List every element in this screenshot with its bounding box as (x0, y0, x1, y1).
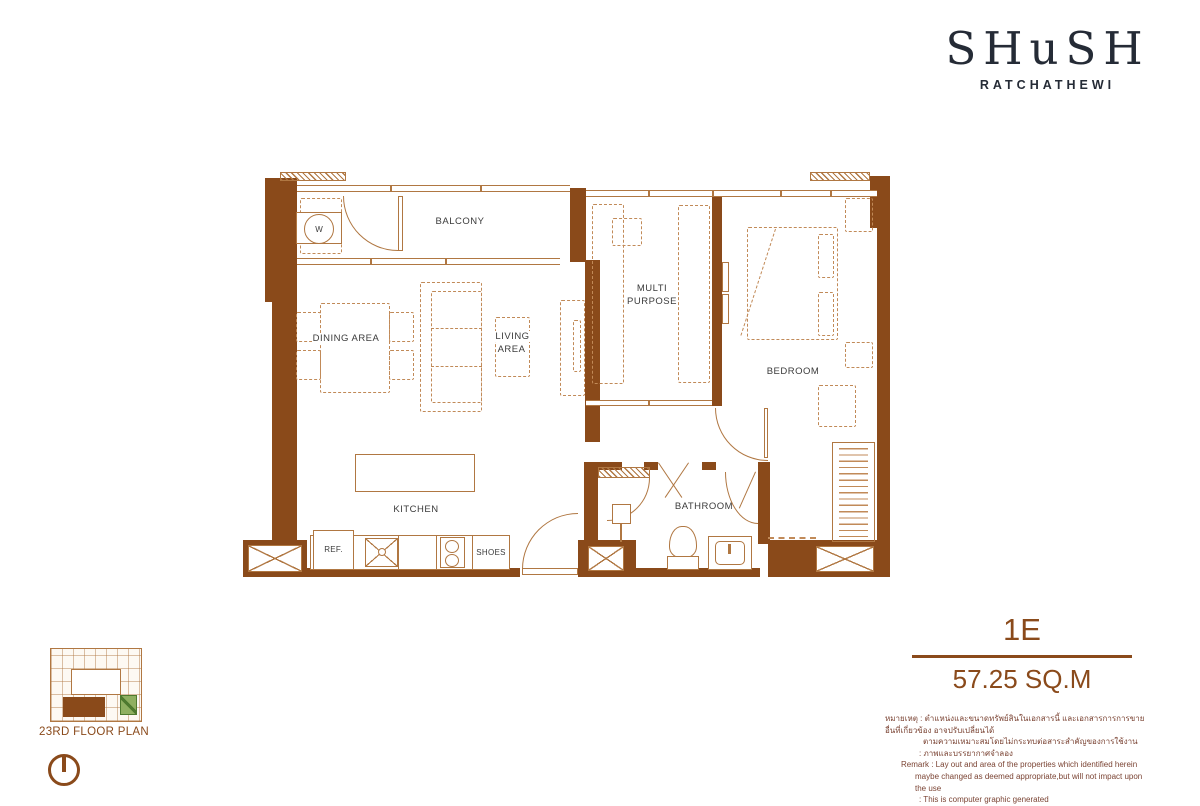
washer-icon: W (304, 214, 334, 244)
pillow (818, 234, 834, 278)
entrance-door-arc (522, 513, 578, 569)
toilet-tank (667, 556, 699, 570)
window-mullion (445, 258, 447, 265)
wardrobe (832, 442, 875, 542)
balcony-door-leaf (398, 196, 403, 251)
stove-burner (445, 554, 459, 567)
entrance-door-leaf (522, 568, 578, 575)
window-mullion (390, 185, 392, 192)
window-mullion (830, 190, 832, 197)
window-mullion (712, 190, 714, 197)
desk-chair (818, 385, 856, 427)
pillow (818, 292, 834, 336)
top-window (586, 190, 877, 197)
balcony-top-window (297, 185, 570, 192)
nightstand (845, 198, 873, 232)
tv-icon (573, 320, 581, 372)
unit-area: 57.25 SQ.M (912, 664, 1132, 695)
shower-head (598, 467, 650, 478)
remark-line: ตามความเหมาะสมโดยไม่กระทบต่อสาระสำคัญของ… (885, 736, 1147, 748)
wall-corner-top-right (870, 176, 890, 228)
dining-table (320, 303, 390, 393)
kitchen-island (355, 454, 475, 492)
nightstand (845, 342, 873, 368)
bifold-door-leaf (658, 462, 682, 497)
bedroom-label: BEDROOM (759, 366, 827, 379)
stove-burner (445, 540, 459, 553)
shaft-xbox-left (248, 545, 302, 572)
compass-needle (62, 756, 66, 772)
balcony-sliding-door (297, 258, 560, 265)
key-plan-stairs-green (120, 695, 137, 715)
wall-left-upper (265, 178, 297, 302)
balcony-door-arc (343, 196, 398, 251)
remark-line: : ภาพและบรรยากาศจำลอง (885, 748, 1147, 760)
shoes-cabinet-label: SHOES (473, 548, 509, 559)
wall-right (877, 186, 890, 542)
dining-chair (296, 350, 321, 380)
balcony-label: BALCONY (425, 216, 495, 229)
key-plan-unit-highlight (63, 697, 105, 717)
sliding-panel (722, 262, 729, 292)
shower-column (612, 504, 631, 524)
key-plan (50, 648, 142, 722)
living-label: LIVING AREA (490, 331, 534, 357)
dining-chair (389, 350, 414, 380)
sofa-cushion-line (431, 366, 482, 367)
remark-line: หมายเหตุ : ตำแหน่งและขนาดทรัพย์สินในเอกส… (885, 713, 1147, 736)
remark-line: Remark : Lay out and area of the propert… (885, 759, 1147, 771)
brand-logo: SHuSH (930, 22, 1165, 75)
wall-multi-bedroom (712, 196, 722, 406)
dining-label: DINING AREA (311, 333, 381, 346)
bifold-door-leaf (665, 462, 689, 497)
sofa-seat (431, 291, 482, 403)
dining-chair (389, 312, 414, 342)
brand-location: RATCHATHEWI (930, 78, 1165, 92)
window-mullion (648, 190, 650, 197)
remark-line: maybe changed as deemed appropriate,but … (885, 771, 1147, 794)
remark-block: หมายเหตุ : ตำแหน่งและขนาดทรัพย์สินในเอกส… (885, 713, 1147, 806)
multi-purpose-label: MULTI PURPOSE (620, 283, 684, 309)
shower-column-stem (620, 524, 622, 542)
key-plan-caption: 23RD FLOOR PLAN (23, 726, 165, 738)
key-plan-core (71, 669, 121, 695)
counter-divider (398, 535, 399, 570)
counter-divider (436, 535, 437, 570)
kitchen-label: KITCHEN (380, 504, 452, 517)
window-mullion (780, 190, 782, 197)
vanity-faucet (728, 544, 731, 554)
refrigerator: REF. (313, 530, 354, 570)
bathroom-door-arc (725, 472, 758, 524)
wall-left-lower (272, 300, 297, 545)
multi-purpose-table (612, 218, 642, 246)
shaft-xbox-right (816, 546, 874, 572)
window-mullion (480, 185, 482, 192)
brand-header: SHuSH RATCHATHEWI (930, 22, 1165, 92)
unit-code: 1E (912, 612, 1132, 648)
balcony-railing-hatch (280, 172, 346, 181)
floor-plan: W BALCONY DINING AREA LIVING AREA KITCHE… (240, 170, 900, 590)
bathroom-label: BATHROOM (670, 501, 738, 514)
window-mullion (648, 400, 650, 406)
toilet-bowl (669, 526, 697, 558)
wall-bath-right (758, 462, 770, 544)
unit-divider (912, 655, 1132, 658)
wall-bath-top-2 (702, 462, 716, 470)
window-mullion (370, 258, 372, 265)
sliding-panel (722, 294, 729, 324)
sofa-cushion-line (431, 328, 482, 329)
ledge-hatch (810, 172, 870, 181)
shaft-xbox-middle (588, 546, 624, 571)
page: { "brand": { "name": "SHuSH", "location"… (0, 0, 1200, 800)
wall-living-multi-upper (570, 188, 586, 262)
closet-dashed-line (768, 537, 816, 539)
bedroom-door-arc (715, 408, 768, 461)
sink-faucet (378, 548, 386, 556)
